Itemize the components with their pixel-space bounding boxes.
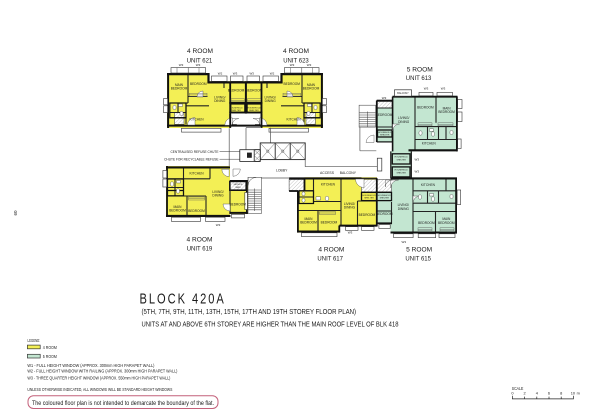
svg-text:DINING: DINING xyxy=(398,120,410,124)
svg-text:W3: W3 xyxy=(348,231,353,235)
svg-text:BEDROOM: BEDROOM xyxy=(300,220,317,224)
svg-text:BEDROOM: BEDROOM xyxy=(438,110,455,114)
svg-text:BEDROOM: BEDROOM xyxy=(438,221,455,225)
svg-text:W3: W3 xyxy=(179,63,184,67)
svg-text:KITCHEN: KITCHEN xyxy=(321,183,336,187)
svg-text:BALCONY: BALCONY xyxy=(397,92,409,95)
svg-text:W2 - FULL HEIGHT WINDOW WITH R: W2 - FULL HEIGHT WINDOW WITH RAILING (AP… xyxy=(27,368,178,373)
svg-text:UNLESS OTHERWISE INDICATED, AL: UNLESS OTHERWISE INDICATED, ALL WINDOWS … xyxy=(27,387,172,392)
svg-text:LOBBY: LOBBY xyxy=(276,168,288,172)
svg-text:60: 60 xyxy=(13,210,18,216)
svg-text:DINING: DINING xyxy=(265,99,277,103)
svg-text:SHELTER: SHELTER xyxy=(380,198,390,200)
svg-text:UNIT 623: UNIT 623 xyxy=(283,59,309,65)
svg-text:BEDROOM: BEDROOM xyxy=(246,89,263,93)
svg-text:4 ROOM: 4 ROOM xyxy=(283,48,309,55)
svg-text:BEDROOM: BEDROOM xyxy=(359,213,376,217)
svg-text:KITCHEN: KITCHEN xyxy=(190,118,205,122)
svg-text:KITCHEN: KITCHEN xyxy=(422,142,437,146)
svg-text:UNIT 613: UNIT 613 xyxy=(406,76,432,82)
svg-text:DINING: DINING xyxy=(398,207,410,211)
svg-text:BEDROOM: BEDROOM xyxy=(303,87,320,91)
svg-text:W3: W3 xyxy=(382,96,387,100)
svg-text:UNITS AT AND ABOVE 6TH STOREY: UNITS AT AND ABOVE 6TH STOREY ARE HIGHER… xyxy=(142,319,399,328)
svg-text:CENTRALISED REFUSE CHUTE: CENTRALISED REFUSE CHUTE xyxy=(171,150,219,154)
svg-text:KITCHEN: KITCHEN xyxy=(190,172,205,176)
svg-text:m: m xyxy=(577,391,580,396)
svg-text:W3: W3 xyxy=(307,63,312,67)
svg-text:BEDROOM: BEDROOM xyxy=(417,106,434,110)
svg-text:BEDROOM: BEDROOM xyxy=(169,208,186,212)
svg-text:W3: W3 xyxy=(402,240,407,244)
svg-text:DINING: DINING xyxy=(212,193,224,197)
svg-text:W3: W3 xyxy=(424,86,429,90)
svg-text:5 ROOM: 5 ROOM xyxy=(407,67,433,74)
svg-text:ACCESS: ACCESS xyxy=(320,171,335,175)
svg-text:4 ROOM: 4 ROOM xyxy=(318,247,344,254)
svg-text:W3: W3 xyxy=(249,72,254,76)
svg-text:SHELTER: SHELTER xyxy=(396,172,406,174)
svg-text:4 ROOM: 4 ROOM xyxy=(43,345,57,350)
svg-text:SCALE: SCALE xyxy=(512,386,524,391)
svg-text:BEDROOM: BEDROOM xyxy=(188,209,205,213)
svg-text:W1 - FULL HEIGHT WINDOW (APPRO: W1 - FULL HEIGHT WINDOW (APPROX. 300mm H… xyxy=(27,363,155,368)
svg-text:BEDROOM: BEDROOM xyxy=(283,82,300,86)
svg-text:UNIT 619: UNIT 619 xyxy=(187,247,213,253)
svg-text:W3 - THREE QUARTER HEIGHT WIND: W3 - THREE QUARTER HEIGHT WINDOW (APPROX… xyxy=(27,375,171,380)
svg-text:5 ROOM: 5 ROOM xyxy=(43,354,57,359)
svg-text:W3: W3 xyxy=(216,223,221,227)
svg-text:W3: W3 xyxy=(233,72,238,76)
svg-text:4 ROOM: 4 ROOM xyxy=(187,48,213,55)
svg-text:SHELTER: SHELTER xyxy=(380,134,390,136)
svg-text:DINING: DINING xyxy=(214,99,226,103)
svg-text:BEDROOM: BEDROOM xyxy=(376,212,393,216)
svg-text:BEDROOM: BEDROOM xyxy=(376,113,393,117)
svg-text:CHUTE FOR RECYCLABLE REFUSE: CHUTE FOR RECYCLABLE REFUSE xyxy=(164,158,218,162)
svg-text:BEDROOM: BEDROOM xyxy=(321,220,338,224)
svg-text:KITCHEN: KITCHEN xyxy=(421,183,436,187)
svg-text:BEDROOM: BEDROOM xyxy=(418,221,435,225)
svg-text:DINING: DINING xyxy=(344,205,356,209)
svg-text:SHELTER: SHELTER xyxy=(364,198,374,200)
svg-text:UNIT 617: UNIT 617 xyxy=(317,257,343,263)
svg-text:5 ROOM: 5 ROOM xyxy=(406,247,432,254)
svg-text:8: 8 xyxy=(560,391,562,396)
svg-text:The coloured floor plan is not: The coloured floor plan is not intended … xyxy=(32,400,214,407)
svg-text:BALCONY: BALCONY xyxy=(340,171,357,175)
svg-text:LEGEND:: LEGEND: xyxy=(28,338,41,343)
svg-text:BEDROOM: BEDROOM xyxy=(228,89,245,93)
svg-text:BEDROOM: BEDROOM xyxy=(190,82,207,86)
svg-text:W3: W3 xyxy=(196,63,201,67)
svg-text:W2: W2 xyxy=(218,72,223,76)
svg-text:SHELTER: SHELTER xyxy=(249,110,259,112)
svg-text:SHELTER: SHELTER xyxy=(396,159,406,161)
svg-text:SHELTER: SHELTER xyxy=(231,110,241,112)
svg-text:W3: W3 xyxy=(415,170,420,174)
svg-text:W3: W3 xyxy=(415,157,420,161)
svg-text:6: 6 xyxy=(548,391,550,396)
svg-text:UNIT 615: UNIT 615 xyxy=(405,257,431,263)
svg-text:W3: W3 xyxy=(441,86,446,90)
svg-text:BLOCK 420A: BLOCK 420A xyxy=(140,290,226,307)
svg-text:4 ROOM: 4 ROOM xyxy=(186,237,212,244)
svg-text:2: 2 xyxy=(524,391,526,396)
svg-text:KITCHEN: KITCHEN xyxy=(287,118,302,122)
svg-text:(5TH, 7TH, 9TH, 11TH, 13TH, 15: (5TH, 7TH, 9TH, 11TH, 13TH, 15TH, 17TH A… xyxy=(142,307,357,316)
svg-text:W2: W2 xyxy=(270,72,275,76)
svg-text:BEDROOM: BEDROOM xyxy=(171,87,188,91)
svg-text:W3: W3 xyxy=(290,63,295,67)
svg-text:YARD: YARD xyxy=(235,186,241,189)
svg-text:BEDROOM: BEDROOM xyxy=(229,203,246,207)
